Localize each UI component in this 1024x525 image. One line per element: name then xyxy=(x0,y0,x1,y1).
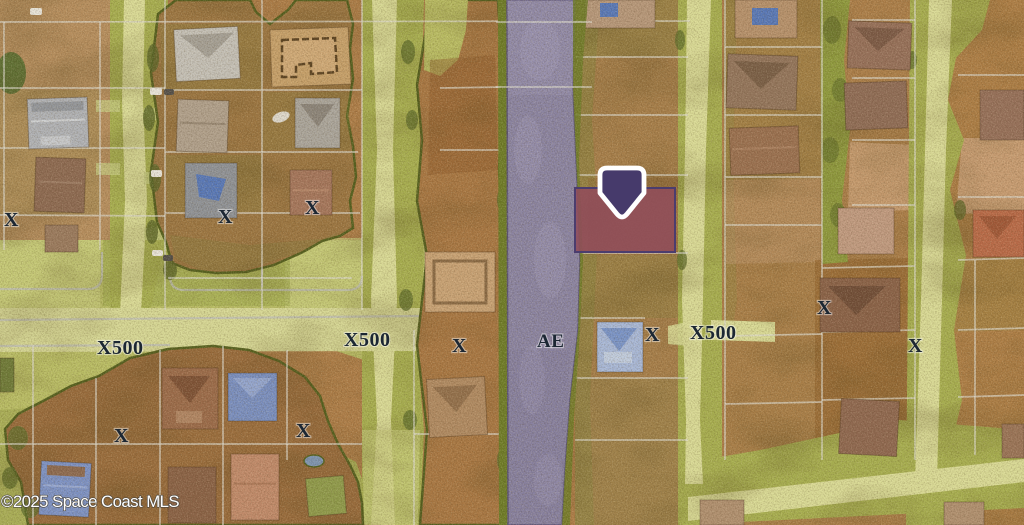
svg-text:©2025 Space Coast MLS: ©2025 Space Coast MLS xyxy=(1,492,179,511)
svg-text:X: X xyxy=(817,297,832,319)
svg-text:X: X xyxy=(218,206,233,228)
svg-text:X: X xyxy=(452,335,467,357)
svg-text:X: X xyxy=(114,425,129,447)
svg-text:X500: X500 xyxy=(97,337,143,359)
svg-text:X: X xyxy=(296,420,311,442)
svg-text:X: X xyxy=(305,197,320,219)
svg-text:X500: X500 xyxy=(690,322,736,344)
svg-text:X: X xyxy=(4,209,19,231)
svg-text:X: X xyxy=(908,335,923,357)
svg-text:X: X xyxy=(645,324,660,346)
svg-text:AE: AE xyxy=(537,331,564,352)
svg-text:X500: X500 xyxy=(344,329,390,351)
